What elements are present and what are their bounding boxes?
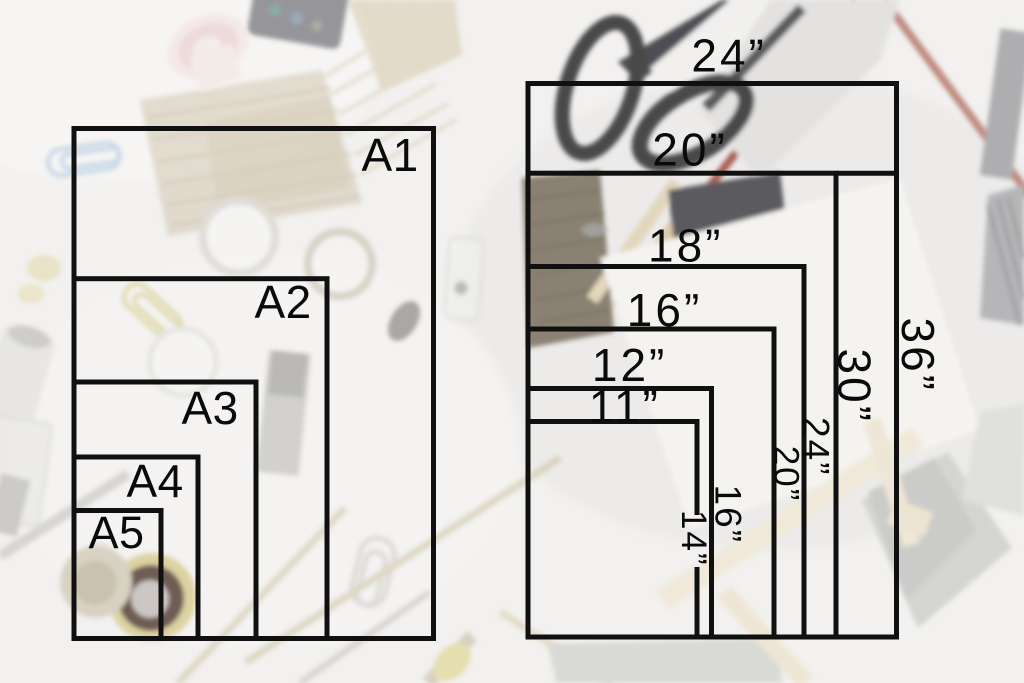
svg-text:14”: 14” [674,510,713,567]
svg-text:16”: 16” [627,284,702,336]
svg-text:30”: 30” [829,349,881,424]
svg-text:A1: A1 [362,129,419,181]
svg-text:24”: 24” [691,30,766,82]
svg-text:11”: 11” [589,381,661,433]
svg-text:A5: A5 [89,507,145,558]
svg-text:36”: 36” [892,318,944,393]
svg-text:A3: A3 [182,382,239,434]
svg-text:18”: 18” [648,220,723,272]
svg-text:A2: A2 [255,276,312,328]
svg-text:20”: 20” [652,124,727,176]
svg-text:20”: 20” [767,446,806,503]
svg-text:A4: A4 [127,455,184,507]
